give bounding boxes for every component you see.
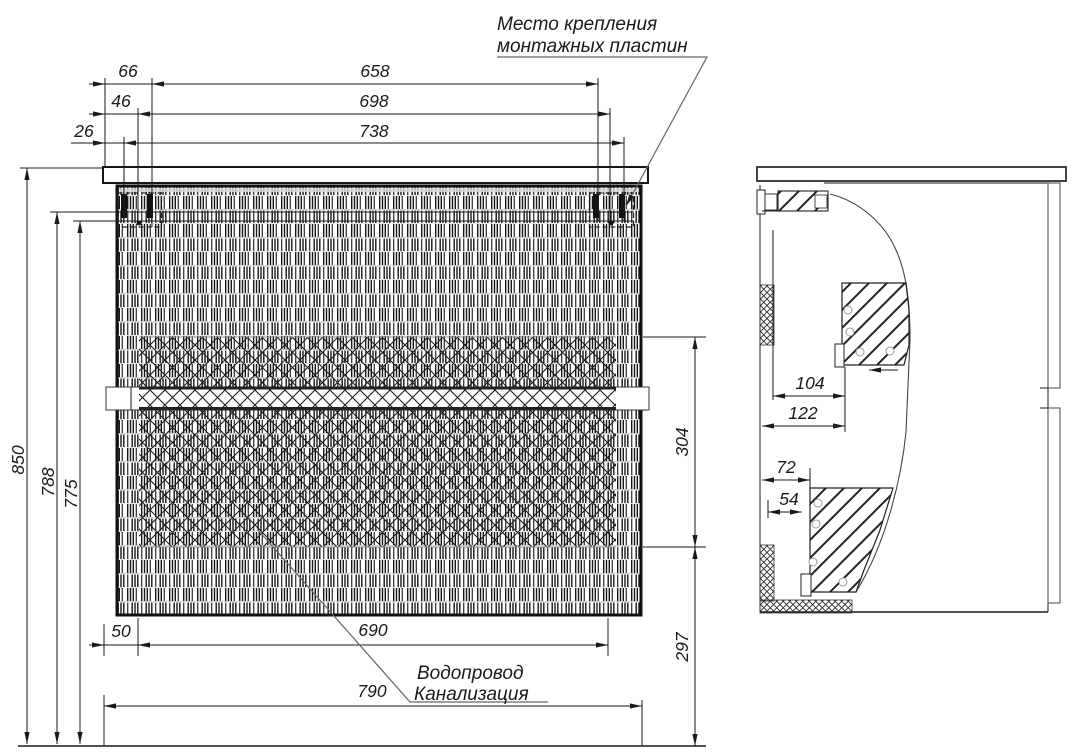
dim-66: 66 — [118, 61, 138, 81]
dim-738: 738 — [359, 121, 388, 141]
dimensions-side: 104 122 72 54 — [762, 230, 845, 518]
floor-hatch — [760, 600, 852, 613]
technical-drawing: 66 658 46 698 26 738 850 788 775 — [0, 0, 1073, 753]
dim-72: 72 — [776, 457, 796, 477]
dim-297: 297 — [672, 631, 692, 662]
side-drawer-front-lower — [1048, 408, 1060, 603]
side-plate-top — [757, 190, 828, 214]
facade-top-shadow — [119, 188, 639, 192]
dim-850: 850 — [8, 445, 28, 474]
dimensions-front-right: 304 297 — [643, 337, 706, 746]
dim-788: 788 — [38, 467, 58, 496]
front-view — [103, 167, 649, 615]
label-plumbing-line2: Канализация — [414, 684, 529, 705]
dimensions-front-bottom: 50 690 790 — [89, 618, 642, 746]
label-plumbing-line1: Водопровод — [417, 663, 523, 684]
mounting-zone-hatch — [139, 337, 616, 547]
dim-26: 26 — [73, 121, 94, 141]
dim-104: 104 — [795, 373, 824, 393]
side-countertop — [757, 167, 1066, 181]
dim-50: 50 — [111, 621, 131, 641]
dim-54: 54 — [779, 489, 799, 509]
label-mounting-plates-line1: Место крепления — [497, 14, 657, 35]
dim-304: 304 — [672, 427, 692, 456]
label-mounting-plates-line2: монтажных пластин — [497, 36, 688, 57]
dim-790: 790 — [357, 681, 386, 701]
dim-46: 46 — [111, 91, 131, 111]
dim-122: 122 — [788, 403, 817, 423]
dim-690: 690 — [358, 620, 387, 640]
dim-658: 658 — [360, 61, 389, 81]
side-drawer-front-upper — [1048, 183, 1060, 388]
dim-775: 775 — [61, 479, 81, 508]
front-countertop — [103, 167, 648, 183]
side-plate-upper — [835, 283, 909, 373]
side-plate-lower — [801, 488, 893, 596]
wall-hatch-lower — [760, 545, 774, 601]
wall-hatch-upper — [760, 285, 774, 345]
dim-698: 698 — [359, 91, 388, 111]
